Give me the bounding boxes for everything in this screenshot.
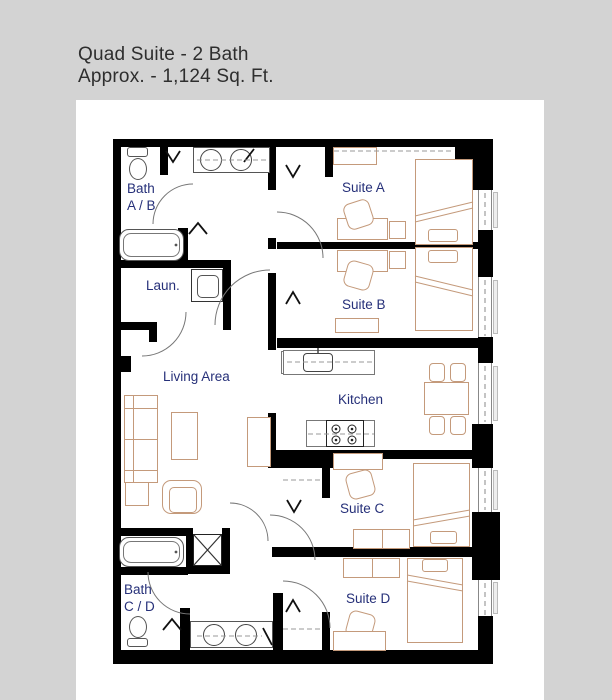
tub-faucet-dot — [175, 244, 178, 247]
dashed-closet-counter-lines — [197, 151, 454, 636]
bed-fold-lines — [407, 202, 473, 591]
room-label-living-area: Living Area — [163, 368, 230, 385]
door-swing-arcs — [142, 184, 330, 628]
room-label-bath-cd-line2: C / D — [124, 598, 155, 615]
room-label-bath-cd-line1: Bath — [124, 581, 155, 598]
tub-faucet-dot — [175, 551, 178, 554]
room-label-bath-cd: Bath C / D — [124, 581, 155, 615]
burner-dot — [351, 428, 353, 430]
room-label-bath-ab-line2: A / B — [127, 197, 156, 214]
room-label-bath-ab: Bath A / B — [127, 180, 156, 214]
room-label-suite-d: Suite D — [346, 590, 390, 607]
plan-title: Quad Suite - 2 Bath — [78, 44, 249, 66]
x-closet-cross — [194, 535, 221, 565]
plan-subtitle-sqft: Approx. - 1,124 Sq. Ft. — [78, 66, 274, 88]
room-label-kitchen: Kitchen — [338, 391, 383, 408]
room-label-suite-b: Suite B — [342, 296, 386, 313]
room-label-suite-a: Suite A — [342, 179, 385, 196]
plan-linework — [0, 0, 612, 700]
room-label-bath-ab-line1: Bath — [127, 180, 156, 197]
room-label-laundry: Laun. — [146, 277, 180, 294]
burner-dot — [335, 439, 337, 441]
floor-plan-page: Quad Suite - 2 Bath Approx. - 1,124 Sq. … — [0, 0, 612, 700]
door-chevron-marks — [163, 149, 301, 645]
burner-dot — [335, 428, 337, 430]
burner-dot — [351, 439, 353, 441]
room-label-suite-c: Suite C — [340, 500, 384, 517]
